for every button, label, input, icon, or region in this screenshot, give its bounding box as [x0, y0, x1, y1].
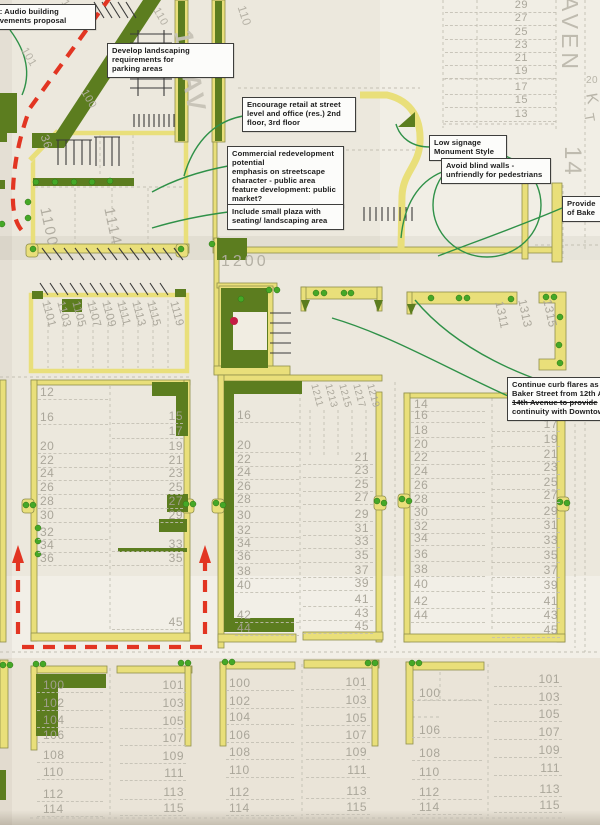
lot-number-17: 17	[153, 425, 183, 437]
lot-number-19: 19	[153, 440, 183, 452]
lot-boundary-line	[120, 710, 186, 711]
lot-number-34: 34	[414, 532, 444, 544]
lot-boundary-line	[445, 25, 556, 26]
lot-number-22: 22	[237, 453, 267, 465]
lot-number-107: 107	[149, 732, 184, 744]
lot-number-25: 25	[508, 27, 528, 38]
lot-boundary-line	[120, 799, 186, 800]
lot-boundary-line	[445, 52, 556, 53]
annotation-landscaping: Develop landscapingrequirements forparki…	[107, 43, 234, 78]
lot-number-115: 115	[525, 799, 560, 811]
lot-boundary-line	[412, 760, 482, 761]
lot-number-108: 108	[229, 746, 259, 758]
lot-number-27: 27	[153, 495, 183, 507]
lot-boundary-line	[38, 565, 108, 566]
lot-boundary-line	[120, 763, 186, 764]
map-label-1200: 1200	[221, 254, 269, 270]
lot-number-32: 32	[40, 526, 70, 538]
lot-boundary-line	[38, 522, 108, 523]
lot-boundary-line	[306, 777, 370, 778]
lot-number-107: 107	[525, 726, 560, 738]
lot-number-42: 42	[414, 595, 444, 607]
lot-number-108: 108	[43, 749, 73, 761]
lot-number-103: 103	[149, 697, 184, 709]
red-marker-dot	[230, 317, 238, 325]
lot-boundary-line	[412, 779, 482, 780]
lot-number-114: 114	[419, 801, 449, 813]
lot-number-30: 30	[40, 509, 70, 521]
lot-number-16: 16	[237, 409, 267, 421]
lot-boundary-line	[235, 422, 299, 423]
lot-number-13: 13	[508, 109, 528, 120]
route-arrow-up	[199, 545, 211, 563]
lot-number-28: 28	[40, 495, 70, 507]
lot-number-22: 22	[414, 451, 444, 463]
lot-number-35: 35	[339, 549, 369, 561]
lot-number-42: 42	[237, 609, 267, 621]
lot-boundary-line	[120, 692, 186, 693]
lot-number-25: 25	[339, 478, 369, 490]
planning-map: 2927252321191715131216202224262830323436…	[0, 0, 600, 825]
lot-number-30: 30	[414, 506, 444, 518]
lot-number-34: 34	[40, 539, 70, 551]
lot-number-35: 35	[528, 549, 558, 561]
lot-number-12: 12	[40, 386, 70, 398]
lot-number-22: 22	[40, 454, 70, 466]
lot-number-27: 27	[339, 491, 369, 503]
lot-boundary-line	[445, 94, 556, 95]
lot-number-114: 114	[43, 803, 73, 815]
lot-number-101: 101	[332, 676, 367, 688]
annotation-line: continuity with Downtown	[512, 408, 600, 417]
lot-number-15: 15	[153, 410, 183, 422]
lot-number-37: 37	[528, 564, 558, 576]
lot-number-43: 43	[528, 609, 558, 621]
lot-number-21: 21	[339, 451, 369, 463]
lot-number-106: 106	[419, 724, 449, 736]
lot-number-29: 29	[528, 505, 558, 517]
lot-boundary-line	[226, 690, 294, 691]
lot-number-20: 20	[237, 439, 267, 451]
lot-boundary-line	[494, 757, 562, 758]
lot-boundary-line	[445, 107, 556, 108]
lot-boundary-line	[120, 815, 186, 816]
lot-number-109: 109	[149, 750, 184, 762]
lot-number-23: 23	[528, 461, 558, 473]
annotation-line: market?	[232, 195, 339, 204]
lot-number-27: 27	[528, 489, 558, 501]
lot-number-29: 29	[339, 508, 369, 520]
annotation-audio-building: d: Audio buildingovements proposal	[0, 4, 96, 30]
lot-number-24: 24	[40, 467, 70, 479]
lot-number-44: 44	[237, 622, 267, 634]
lot-number-110: 110	[419, 766, 449, 778]
annotation-line: of Bake	[567, 209, 600, 218]
lot-boundary-line	[445, 39, 556, 40]
lot-number-33: 33	[153, 538, 183, 550]
lot-number-20: 20	[414, 438, 444, 450]
lot-number-26: 26	[414, 479, 444, 491]
lot-number-33: 33	[528, 534, 558, 546]
lot-boundary-line	[37, 692, 103, 693]
lot-number-104: 104	[229, 711, 259, 723]
lot-boundary-line	[306, 725, 370, 726]
lot-boundary-line	[494, 686, 562, 687]
lot-boundary-line	[306, 798, 370, 799]
lot-boundary-line	[445, 78, 556, 79]
lot-number-109: 109	[332, 746, 367, 758]
lot-boundary-line	[306, 814, 370, 815]
map-label-AVEN: AVEN	[558, 0, 581, 73]
lot-number-24: 24	[414, 465, 444, 477]
lot-number-38: 38	[414, 563, 444, 575]
lot-number-112: 112	[419, 786, 449, 798]
lot-number-21: 21	[508, 53, 528, 64]
annotation-plaza: Include small plaza withseating/ landsca…	[227, 204, 344, 230]
lot-number-35: 35	[153, 552, 183, 564]
lot-number-102: 102	[43, 697, 73, 709]
lot-number-43: 43	[339, 607, 369, 619]
lot-boundary-line	[226, 799, 294, 800]
lot-boundary-line	[412, 700, 482, 701]
lot-boundary-line	[306, 759, 370, 760]
lot-number-106: 106	[43, 729, 73, 741]
lot-number-19: 19	[508, 66, 528, 77]
lot-number-39: 39	[339, 577, 369, 589]
annotation-line: ovements proposal	[0, 17, 91, 26]
lot-number-101: 101	[525, 673, 560, 685]
lot-boundary-line	[112, 629, 183, 630]
lot-boundary-line	[411, 591, 485, 592]
lot-number-21: 21	[528, 448, 558, 460]
lot-boundary-line	[226, 724, 294, 725]
annotation-line: Monument Style	[434, 148, 502, 157]
lot-boundary-line	[38, 399, 108, 400]
lot-boundary-line	[112, 565, 183, 566]
lot-boundary-line	[37, 710, 103, 711]
annotation-provide: Provideof Bake	[562, 196, 600, 222]
lot-number-105: 105	[525, 708, 560, 720]
lot-boundary-line	[226, 708, 294, 709]
lot-number-19: 19	[528, 433, 558, 445]
lot-number-104: 104	[43, 714, 73, 726]
annotation-blind-walls: Avoid blind walls -unfriendly for pedest…	[441, 158, 551, 184]
lot-boundary-line	[235, 635, 299, 636]
lot-boundary-line	[494, 796, 562, 797]
lot-number-23: 23	[153, 467, 183, 479]
lot-number-113: 113	[525, 783, 560, 795]
lot-number-113: 113	[332, 785, 367, 797]
annotation-line: parking areas	[112, 65, 229, 74]
map-label-14: 14	[560, 146, 584, 177]
lot-number-28: 28	[414, 493, 444, 505]
lot-boundary-line	[445, 65, 556, 66]
lot-number-111: 111	[149, 767, 184, 779]
lot-boundary-line	[303, 504, 373, 505]
annotation-commercial: Commercial redevelopmentpotentialemphasi…	[227, 146, 344, 208]
lot-number-17: 17	[508, 82, 528, 93]
lot-number-101: 101	[149, 679, 184, 691]
lot-number-111: 111	[525, 762, 560, 774]
lot-number-36: 36	[40, 552, 70, 564]
lot-boundary-line	[235, 592, 299, 593]
lot-number-40: 40	[414, 578, 444, 590]
lot-number-110: 110	[43, 766, 73, 778]
lot-boundary-line	[303, 590, 373, 591]
lot-number-102: 102	[229, 695, 259, 707]
lot-boundary-line	[120, 728, 186, 729]
lot-number-31: 31	[528, 519, 558, 531]
annotation-line: unfriendly for pedestrians	[446, 171, 546, 180]
lot-number-40: 40	[237, 579, 267, 591]
lot-number-39: 39	[528, 579, 558, 591]
lot-boundary-line	[494, 812, 562, 813]
lot-boundary-line	[494, 704, 562, 705]
lot-number-24: 24	[237, 466, 267, 478]
lot-number-21: 21	[153, 454, 183, 466]
lot-number-112: 112	[229, 786, 259, 798]
annotation-curb-flares: Continue curb flares as onBaker Street f…	[507, 377, 600, 421]
lot-boundary-line	[492, 637, 560, 638]
lot-boundary-line	[37, 816, 103, 817]
lot-number-111: 111	[332, 764, 367, 776]
lot-boundary-line	[306, 742, 370, 743]
lot-boundary-line	[306, 689, 370, 690]
lot-boundary-line	[120, 780, 186, 781]
lot-boundary-line	[306, 707, 370, 708]
lot-number-114: 114	[229, 802, 259, 814]
lot-boundary-line	[120, 745, 186, 746]
lot-number-26: 26	[237, 480, 267, 492]
route-arrow-up	[12, 545, 24, 563]
lot-number-36: 36	[237, 550, 267, 562]
lot-boundary-line	[411, 545, 485, 546]
lot-number-34: 34	[237, 537, 267, 549]
lot-number-33: 33	[339, 535, 369, 547]
lot-number-100: 100	[419, 687, 449, 699]
lot-number-37: 37	[339, 564, 369, 576]
lot-number-25: 25	[153, 481, 183, 493]
lot-number-45: 45	[153, 616, 183, 628]
lot-number-16: 16	[414, 409, 444, 421]
lot-number-109: 109	[525, 744, 560, 756]
lot-number-27: 27	[508, 13, 528, 24]
lot-number-44: 44	[414, 609, 444, 621]
map-label-20: 20	[586, 76, 598, 86]
lot-number-23: 23	[339, 464, 369, 476]
lot-number-36: 36	[414, 548, 444, 560]
lot-boundary-line	[492, 592, 560, 593]
lot-number-110: 110	[229, 764, 259, 776]
lot-number-23: 23	[508, 40, 528, 51]
lot-number-103: 103	[332, 694, 367, 706]
lot-boundary-line	[303, 633, 373, 634]
lot-number-32: 32	[237, 524, 267, 536]
lot-number-29: 29	[508, 0, 528, 11]
lot-number-106: 106	[229, 729, 259, 741]
lot-boundary-line	[494, 739, 562, 740]
lot-boundary-line	[226, 815, 294, 816]
lot-boundary-line	[226, 777, 294, 778]
lot-number-41: 41	[528, 595, 558, 607]
lot-number-100: 100	[229, 677, 259, 689]
lot-number-45: 45	[339, 620, 369, 632]
lot-number-18: 18	[414, 424, 444, 436]
lot-number-28: 28	[237, 493, 267, 505]
tree-triangle	[398, 112, 415, 127]
lot-boundary-line	[37, 742, 103, 743]
lot-number-29: 29	[153, 509, 183, 521]
annotation-retail: Encourage retail at streetlevel and offi…	[242, 97, 356, 132]
lot-number-26: 26	[40, 481, 70, 493]
annotation-line: floor, 3rd floor	[247, 119, 351, 128]
lot-number-38: 38	[237, 565, 267, 577]
lot-boundary-line	[37, 779, 103, 780]
lot-number-25: 25	[528, 476, 558, 488]
lot-number-31: 31	[339, 522, 369, 534]
lot-boundary-line	[112, 522, 183, 523]
lot-number-108: 108	[419, 747, 449, 759]
lot-boundary-line	[494, 721, 562, 722]
lot-number-15: 15	[508, 95, 528, 106]
lot-number-100: 100	[43, 679, 73, 691]
lot-boundary-line	[445, 12, 556, 13]
lot-number-112: 112	[43, 788, 73, 800]
lot-number-16: 16	[40, 411, 70, 423]
lot-number-105: 105	[149, 715, 184, 727]
lot-boundary-line	[226, 759, 294, 760]
lot-number-113: 113	[149, 786, 184, 798]
lot-number-105: 105	[332, 712, 367, 724]
lot-boundary-line	[412, 814, 482, 815]
lot-boundary-line	[38, 424, 108, 425]
lot-number-103: 103	[525, 691, 560, 703]
lot-number-20: 20	[40, 440, 70, 452]
lot-number-30: 30	[237, 509, 267, 521]
lot-number-41: 41	[339, 593, 369, 605]
annotation-line: seating/ landscaping area	[232, 217, 339, 226]
lot-number-107: 107	[332, 729, 367, 741]
lot-boundary-line	[445, 121, 556, 122]
lot-boundary-line	[492, 502, 560, 503]
lot-boundary-line	[411, 622, 485, 623]
lot-boundary-line	[494, 775, 562, 776]
lot-number-115: 115	[332, 801, 367, 813]
lot-boundary-line	[226, 742, 294, 743]
lot-number-115: 115	[149, 802, 184, 814]
lot-boundary-line	[412, 737, 482, 738]
lot-boundary-line	[235, 506, 299, 507]
lot-number-45: 45	[528, 624, 558, 636]
lot-boundary-line	[37, 762, 103, 763]
